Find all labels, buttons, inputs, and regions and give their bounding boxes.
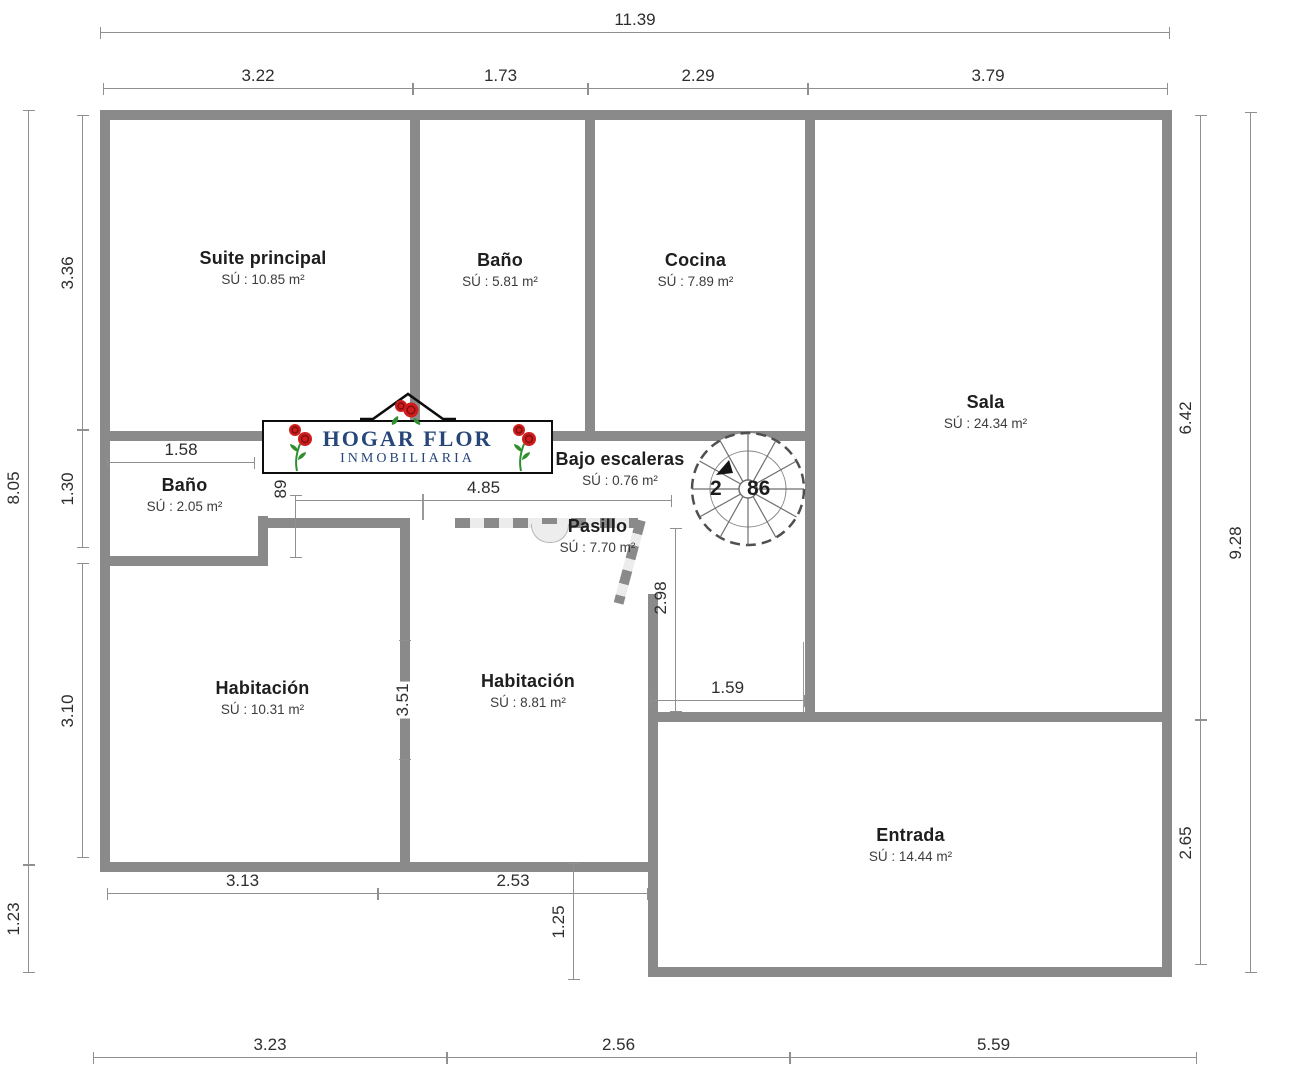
dim-label: 2.29 [681,66,714,86]
dim-hall-drop: 2.98 [675,528,676,712]
agency-subtitle: INMOBILIARIA [340,451,475,466]
dim-label: 1.30 [58,472,78,505]
door-leaf [422,494,424,520]
room-name: Bajo escaleras [545,449,695,470]
dim-top-2: 1.73 [413,88,588,89]
dim-label: 3.10 [58,694,78,727]
wall [648,967,1172,977]
wall [648,712,658,977]
dim-corridor-width: 89 [295,495,296,558]
wall [100,110,1172,120]
room-name: Entrada [828,825,993,846]
dim-label: 5.59 [977,1035,1010,1055]
wall [648,712,1172,722]
dim-bath-width: 1.58 [107,462,255,463]
room-area: SÚ : 14.44 m² [828,849,993,864]
dim-bottom-mid-2: 2.53 [378,893,648,894]
room-name: Cocina [623,250,768,271]
dim-label: 11.39 [614,10,655,30]
dim-right-inner-2: 2.65 [1200,720,1201,965]
room-area: SÚ : 7.70 m² [520,540,675,555]
room-habitacion-center: Habitación SÚ : 8.81 m² [448,671,608,710]
dim-label: 1.73 [484,66,517,86]
dim-bottom-mid-1: 3.13 [107,893,378,894]
dim-right-inner-1: 6.42 [1200,115,1201,720]
dim-label: 3.23 [253,1035,286,1055]
dim-label: 2.56 [602,1035,635,1055]
stair-dimension-right: 86 [747,477,770,501]
room-area: SÚ : 7.89 m² [623,274,768,289]
dim-right-outer: 9.28 [1250,112,1251,973]
dim-label: 3.51 [393,681,413,718]
room-name: Baño [430,250,570,271]
room-area: SÚ : 24.34 m² [903,416,1068,431]
floor-plan: 11.39 3.22 1.73 2.29 3.79 8.05 1.23 3.36… [0,0,1292,1080]
dim-left-inner-2: 1.30 [82,430,83,548]
wall [100,556,268,566]
room-name: Baño [112,475,257,496]
dim-bottom-2: 2.56 [447,1057,790,1058]
dim-top-total: 11.39 [100,32,1170,33]
wall [262,518,410,528]
wall [410,110,420,435]
rose-icon [390,396,424,426]
wall [1162,110,1172,977]
dim-label: 3.13 [226,871,259,891]
dim-label: 6.42 [1176,401,1196,434]
room-pasillo: Pasillo SÚ : 7.70 m² [520,516,675,555]
dim-label: 2.98 [651,581,671,614]
dim-stair-landing: 1.59 [650,700,805,701]
room-name: Sala [903,392,1068,413]
room-name: Pasillo [520,516,675,537]
room-habitacion-left: Habitación SÚ : 10.31 m² [180,678,345,717]
agency-name: HOGAR FLOR [323,427,493,450]
rose-icon [286,422,314,472]
dim-label: 1.59 [711,678,744,698]
dim-label: 1.25 [549,905,569,938]
dim-bottom-1: 3.23 [93,1057,447,1058]
dim-label: 2.53 [496,871,529,891]
room-area: SÚ : 2.05 m² [112,499,257,514]
dim-top-1: 3.22 [103,88,413,89]
dim-left-inner-1: 3.36 [82,115,83,430]
dim-label: 89 [271,480,291,499]
dim-label: 3.79 [971,66,1004,86]
dim-label: 3.22 [241,66,274,86]
dim-hall-length: 4.85 [295,500,672,501]
room-bano-top: Baño SÚ : 5.81 m² [430,250,570,289]
room-name: Suite principal [153,248,373,269]
room-entrada: Entrada SÚ : 14.44 m² [828,825,993,864]
wall [805,110,815,722]
wall [100,110,110,872]
dim-extension-line [803,642,804,712]
dim-label: 1.23 [4,902,24,935]
room-area: SÚ : 10.31 m² [180,702,345,717]
rose-icon [510,422,538,472]
room-bano-small: Baño SÚ : 2.05 m² [112,475,257,514]
room-suite-principal: Suite principal SÚ : 10.85 m² [153,248,373,287]
room-area: SÚ : 0.76 m² [545,473,695,488]
room-cocina: Cocina SÚ : 7.89 m² [623,250,768,289]
dim-left-outer-1: 8.05 [28,110,29,865]
dim-top-3: 2.29 [588,88,808,89]
dim-left-inner-3: 3.10 [82,563,83,858]
room-bajo-escaleras: Bajo escaleras SÚ : 0.76 m² [545,449,695,488]
dim-label: 3.36 [58,256,78,289]
room-area: SÚ : 5.81 m² [430,274,570,289]
dim-top-4: 3.79 [808,88,1168,89]
dim-label: 9.28 [1226,526,1246,559]
dim-label: 1.58 [164,440,197,460]
dim-label: 8.05 [4,471,24,504]
room-name: Habitación [448,671,608,692]
room-area: SÚ : 10.85 m² [153,272,373,287]
dim-bottom-3: 5.59 [790,1057,1197,1058]
stair-dimension-left: 2 [710,477,722,501]
dim-label: 4.85 [467,478,500,498]
wall [585,110,595,435]
room-area: SÚ : 8.81 m² [448,695,608,710]
room-name: Habitación [180,678,345,699]
dim-entry-step: 1.25 [573,863,574,980]
room-sala: Sala SÚ : 24.34 m² [903,392,1068,431]
dim-left-outer-2: 1.23 [28,865,29,973]
dim-label: 2.65 [1176,826,1196,859]
